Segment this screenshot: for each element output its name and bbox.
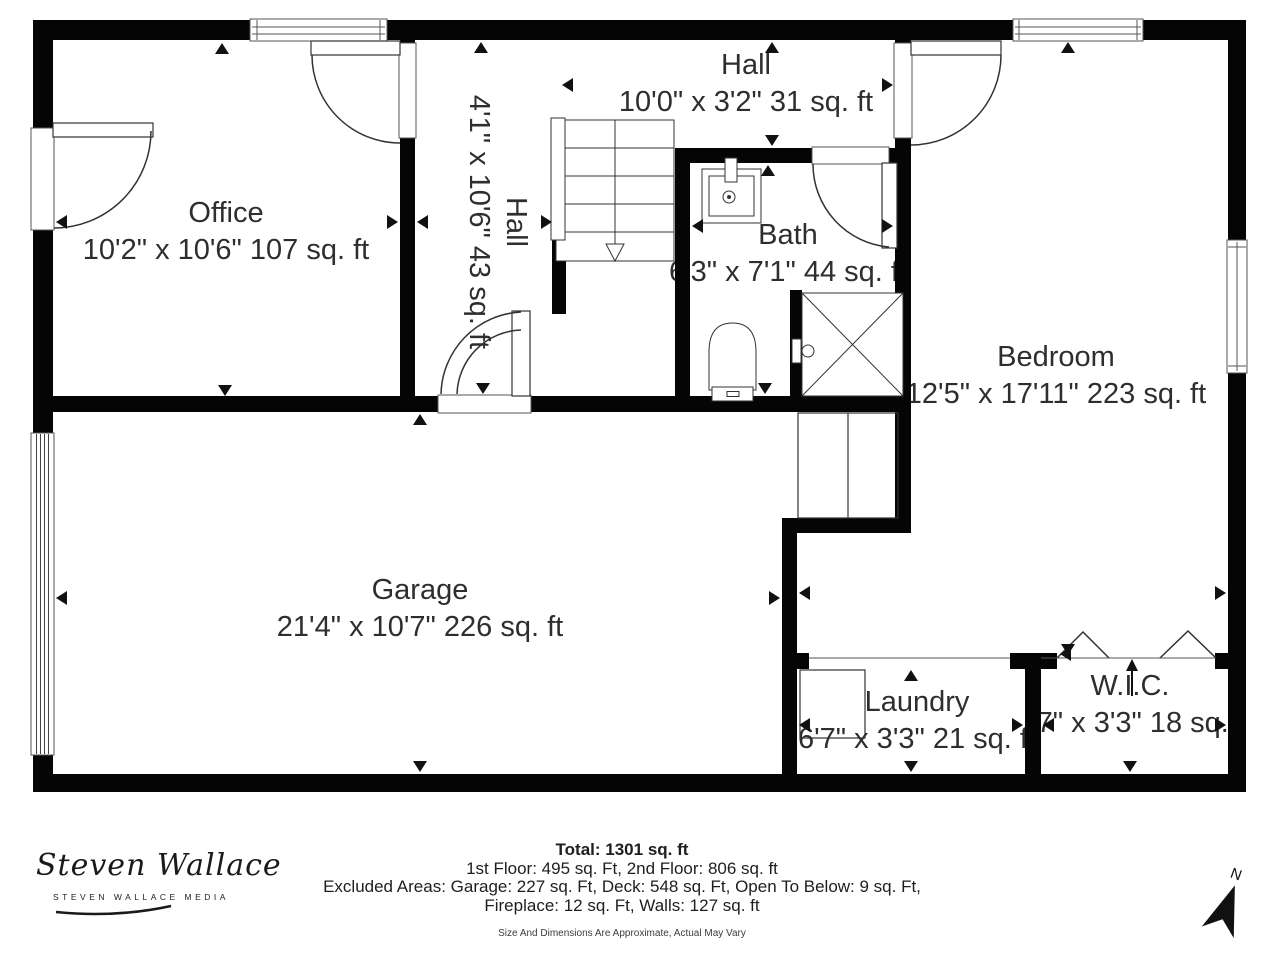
logo-sub-text: STEVEN WALLACE MEDIA <box>53 892 282 902</box>
bedroom-top-window <box>1013 19 1143 41</box>
garage-room-name: Garage <box>220 572 620 609</box>
dimension-marker <box>904 761 918 772</box>
garage-door <box>31 433 54 755</box>
dimension-marker <box>413 761 427 772</box>
hall-stairs-room-name: Hall <box>497 42 534 402</box>
bedroom-room-dims: 12'5" x 17'11" 223 sq. ft <box>856 376 1256 413</box>
closet-door-opening <box>399 43 416 138</box>
bath-room-dims: 6'3" x 7'1" 44 sq. ft <box>588 254 988 291</box>
wic-bifold-doors <box>1057 631 1216 658</box>
dimension-marker <box>417 215 428 229</box>
floor-plan-page: Office 10'2" x 10'6" 107 sq. ft Hall 10'… <box>0 0 1280 960</box>
stair-jamb <box>551 118 565 240</box>
bedroom-room-name: Bedroom <box>856 339 1256 376</box>
compass: N <box>1192 862 1262 957</box>
dimension-marker <box>904 670 918 681</box>
office-window <box>250 19 387 41</box>
floor-areas-text: 1st Floor: 495 sq. Ft, 2nd Floor: 806 sq… <box>222 860 1022 879</box>
office-room-name: Office <box>56 195 396 232</box>
logo-swoosh <box>36 902 216 916</box>
closet-box <box>798 413 898 518</box>
floor-plan-drawing <box>0 0 1280 960</box>
dimension-marker <box>215 43 229 54</box>
brand-logo: Steven Wallace STEVEN WALLACE MEDIA <box>36 848 282 921</box>
office-entry-door-leaf <box>53 123 153 137</box>
garage-room-dims: 21'4" x 10'7" 226 sq. ft <box>220 609 620 646</box>
office-entry-opening <box>31 128 54 230</box>
north-arrow-icon: N <box>1192 862 1262 952</box>
wic-room-name: W.I.C. <box>1030 668 1230 705</box>
dimension-marker <box>541 215 552 229</box>
north-label: N <box>1228 865 1244 885</box>
dimension-marker <box>761 165 775 176</box>
closet-door-leaf <box>311 41 400 55</box>
dimension-marker <box>56 591 67 605</box>
sink-drain-icon <box>723 191 735 203</box>
excluded-areas-text-line2: Fireplace: 12 sq. Ft, Walls: 127 sq. ft <box>222 897 1022 916</box>
dimension-marker <box>758 383 772 394</box>
sink-faucet-icon <box>725 158 737 182</box>
dimension-marker <box>765 135 779 146</box>
hall-upper-room-name: Hall <box>546 47 946 84</box>
dimension-marker <box>1123 761 1137 772</box>
dimension-marker <box>1061 644 1075 655</box>
dimension-marker <box>1060 647 1071 661</box>
total-area-text: Total: 1301 sq. ft <box>222 841 1022 860</box>
dimension-marker <box>1215 586 1226 600</box>
excluded-areas-text-line1: Excluded Areas: Garage: 227 sq. Ft, Deck… <box>222 878 1022 897</box>
dimension-marker <box>413 414 427 425</box>
closet-door-arc <box>312 55 400 143</box>
dimension-marker <box>799 586 810 600</box>
hall-upper-room-dims: 10'0" x 3'2" 31 sq. ft <box>546 84 946 121</box>
dimension-marker <box>218 385 232 396</box>
wic-room-dims-clip: 5'7" x 3'3" 18 sq. ft <box>1041 705 1246 742</box>
garage-door-panels <box>37 434 49 754</box>
dimension-marker <box>769 591 780 605</box>
bath-room-name: Bath <box>588 217 988 254</box>
hall-stairs-room-label: Hall 4'1" x 10'6" 43 sq. ft <box>460 42 534 402</box>
logo-script-text: Steven Wallace <box>36 848 282 883</box>
toilet-icon <box>709 323 756 390</box>
office-room-dims: 10'2" x 10'6" 107 sq. ft <box>56 232 396 269</box>
wic-room-dims: 5'7" x 3'3" 18 sq. ft <box>1041 705 1246 742</box>
dimension-marker <box>1061 42 1075 53</box>
area-summary: Total: 1301 sq. ft 1st Floor: 495 sq. Ft… <box>222 841 1022 944</box>
bath-door-opening <box>812 147 889 164</box>
hall-stairs-room-dims: 4'1" x 10'6" 43 sq. ft <box>460 42 497 402</box>
disclaimer-text: Size And Dimensions Are Approximate, Act… <box>222 925 1022 944</box>
shower-head-icon <box>792 339 801 363</box>
sink-vanity <box>702 169 761 223</box>
